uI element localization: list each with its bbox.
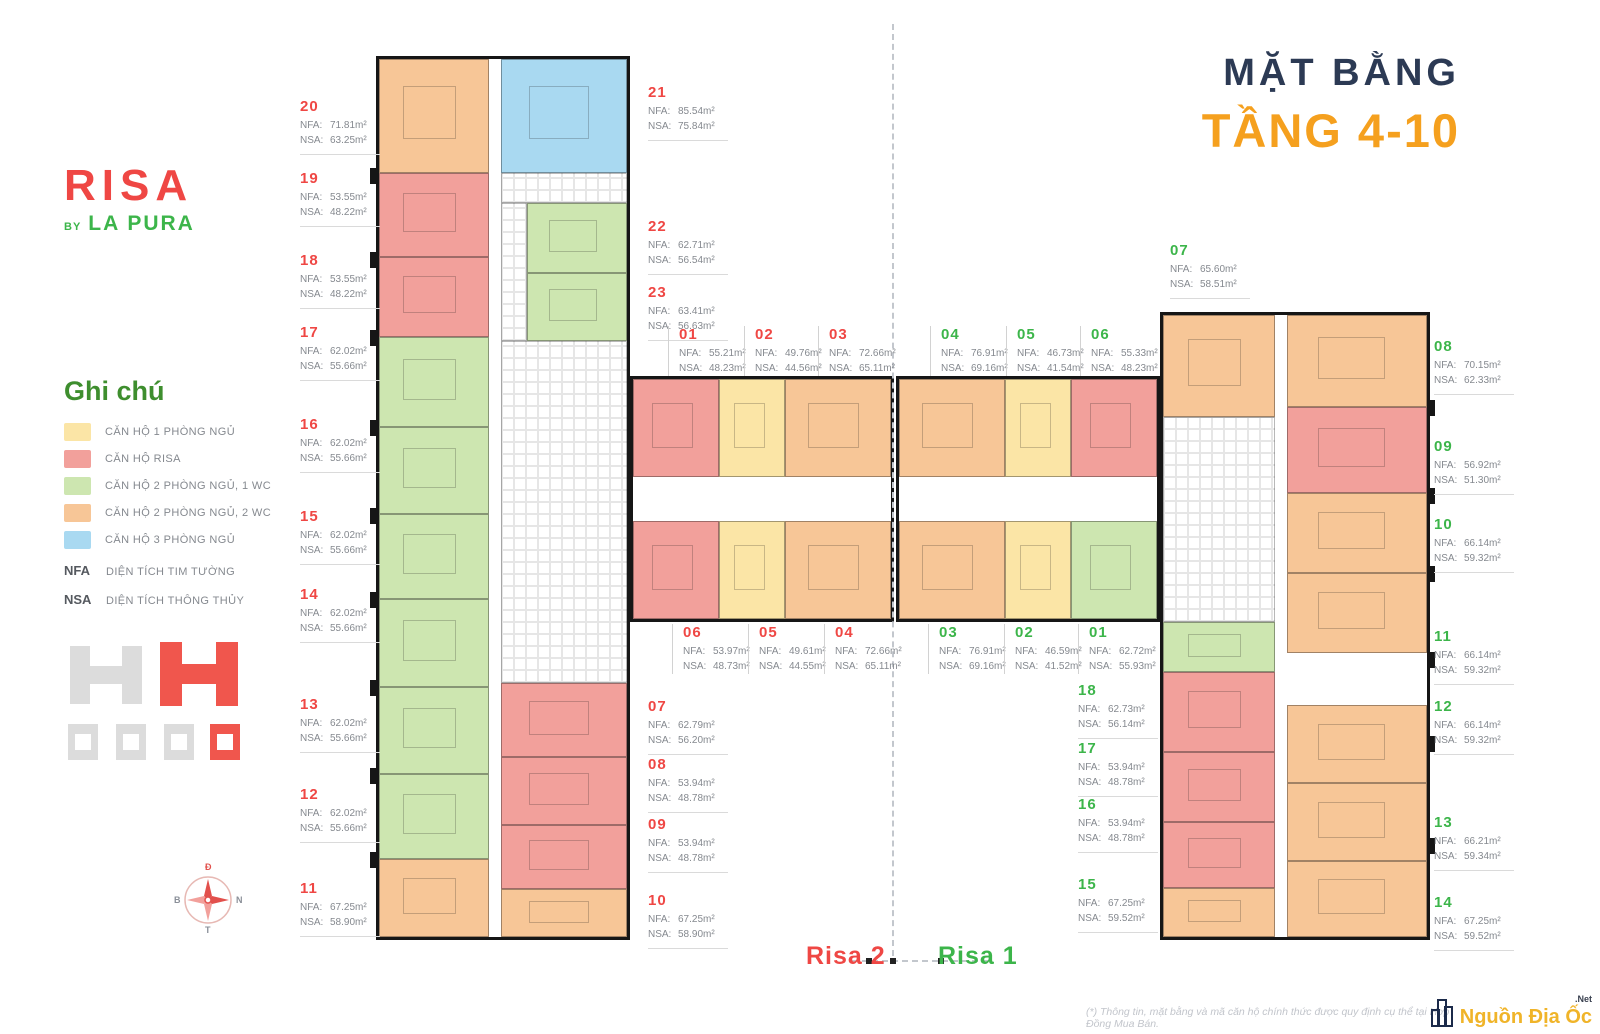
floorplan-canvas: MẶT BẰNG TẦNG 4-10 RISA BY LA PURA Ghi c… (0, 0, 1600, 1034)
unit-block (719, 379, 785, 477)
watermark-suffix: .Net (1460, 994, 1592, 1004)
unit-block (1163, 888, 1275, 937)
unit-block (527, 273, 627, 341)
unit-block (1287, 861, 1427, 937)
unit-label: 04NFA:72.66m²NSA:65.11m² (824, 624, 915, 674)
unit-block (501, 683, 627, 757)
unit-label: 13NFA:62.02m²NSA:55.66m² (300, 696, 380, 753)
unit-block (1163, 822, 1275, 888)
unit-label: 07NFA:65.60m²NSA:58.51m² (1170, 242, 1250, 299)
unit-label: 07NFA:62.79m²NSA:56.20m² (648, 698, 728, 755)
unit-block (1005, 521, 1071, 619)
unit-label: 18NFA:53.55m²NSA:48.22m² (300, 252, 380, 309)
unit-block (379, 173, 489, 257)
page-title-line1: MẶT BẰNG (1202, 52, 1460, 95)
unit-label: 21NFA:85.54m²NSA:75.84m² (648, 84, 728, 141)
site-block-icon (164, 724, 194, 760)
unit-label: 01NFA:62.72m²NSA:55.93m² (1078, 624, 1169, 674)
compass-bottom-label: T (205, 925, 211, 935)
stair-core (501, 173, 627, 203)
unit-label: 10NFA:67.25m²NSA:58.90m² (648, 892, 728, 949)
unit-block (1163, 622, 1275, 672)
unit-label: 11NFA:66.14m²NSA:59.32m² (1434, 628, 1514, 685)
unit-label: 09NFA:56.92m²NSA:51.30m² (1434, 438, 1514, 495)
legend-item: CĂN HỘ 3 PHÒNG NGỦ (64, 531, 294, 549)
unit-block (1005, 379, 1071, 477)
risa1-building (1160, 312, 1430, 940)
unit-block (379, 599, 489, 687)
unit-label: 15NFA:62.02m²NSA:55.66m² (300, 508, 380, 565)
unit-label: 03NFA:72.66m²NSA:65.11m² (818, 326, 909, 376)
unit-block (501, 889, 627, 937)
risa-logo: RISA BY LA PURA (64, 164, 195, 236)
unit-block (719, 521, 785, 619)
unit-label: 09NFA:53.94m²NSA:48.78m² (648, 816, 728, 873)
compass-rose-icon: Đ N T B (172, 862, 244, 934)
unit-label: 16NFA:62.02m²NSA:55.66m² (300, 416, 380, 473)
legend-swatch-1br (64, 423, 91, 441)
risa1-name: Risa 1 (938, 942, 1018, 971)
page-title-line2: TẦNG 4-10 (1202, 103, 1460, 158)
unit-block (1287, 705, 1427, 783)
risa2-name: Risa 2 (806, 942, 886, 971)
compass-left-label: B (174, 895, 181, 905)
tower-divider-line (892, 24, 894, 956)
unit-block (379, 59, 489, 173)
unit-block (633, 521, 719, 619)
legend-swatch-2br1wc (64, 477, 91, 495)
unit-label: 15NFA:67.25m²NSA:59.52m² (1078, 876, 1158, 933)
unit-label: 14NFA:62.02m²NSA:55.66m² (300, 586, 380, 643)
unit-block (1287, 315, 1427, 407)
unit-block (1287, 573, 1427, 653)
unit-block (1163, 315, 1275, 417)
stair-core (501, 203, 527, 341)
page-title: MẶT BẰNG TẦNG 4-10 (1202, 52, 1460, 158)
legend-item: CĂN HỘ 2 PHÒNG NGỦ, 1 WC (64, 477, 294, 495)
unit-label: 17NFA:53.94m²NSA:48.78m² (1078, 740, 1158, 797)
unit-label: 17NFA:62.02m²NSA:55.66m² (300, 324, 380, 381)
unit-label: 22NFA:62.71m²NSA:56.54m² (648, 218, 728, 275)
unit-label: 12NFA:66.14m²NSA:59.32m² (1434, 698, 1514, 755)
disclaimer-text: (*) Thông tin, mặt bằng và mã căn hộ chí… (1086, 1006, 1456, 1030)
unit-block (379, 774, 489, 859)
unit-label: 08NFA:53.94m²NSA:48.78m² (648, 756, 728, 813)
unit-block (1163, 672, 1275, 752)
unit-block (379, 687, 489, 774)
unit-block (379, 427, 489, 514)
unit-label: 14NFA:67.25m²NSA:59.52m² (1434, 894, 1514, 951)
site-tower-red-icon (160, 642, 182, 706)
site-block-icon (68, 724, 98, 760)
unit-label: 13NFA:66.21m²NSA:59.34m² (1434, 814, 1514, 871)
site-block-icon (116, 724, 146, 760)
unit-label: 12NFA:62.02m²NSA:55.66m² (300, 786, 380, 843)
unit-block (527, 203, 627, 273)
watermark-name: Nguồn Địa Ốc (1460, 1006, 1592, 1028)
legend-item: CĂN HỘ RISA (64, 450, 294, 468)
unit-block (1163, 752, 1275, 822)
unit-block (501, 59, 627, 173)
unit-block (379, 257, 489, 337)
unit-block (1287, 407, 1427, 493)
legend-item: CĂN HỘ 1 PHÒNG NGỦ (64, 423, 294, 441)
legend-item: CĂN HỘ 2 PHÒNG NGỦ, 2 WC (64, 504, 294, 522)
legend-abbr-nfa: NFADIỆN TÍCH TIM TƯỜNG (64, 563, 294, 578)
unit-label: 08NFA:70.15m²NSA:62.33m² (1434, 338, 1514, 395)
logo-name: RISA (64, 164, 195, 208)
wall-tick (370, 680, 377, 696)
compass-top-label: Đ (205, 862, 212, 872)
unit-block (379, 337, 489, 427)
site-plan-icons (64, 640, 244, 770)
unit-block (785, 521, 891, 619)
wall-tick (370, 768, 377, 784)
unit-label: 06NFA:55.33m²NSA:48.23m² (1080, 326, 1171, 376)
unit-block (1071, 521, 1157, 619)
legend-abbr-nsa: NSADIỆN TÍCH THÔNG THỦY (64, 592, 294, 607)
site-tower-gray-icon (70, 646, 90, 704)
unit-block (899, 379, 1005, 477)
legend-title: Ghi chú (64, 376, 294, 407)
legend: Ghi chú CĂN HỘ 1 PHÒNG NGỦ CĂN HỘ RISA C… (64, 376, 294, 607)
legend-swatch-2br2wc (64, 504, 91, 522)
logo-by: BY (64, 221, 81, 233)
risa2-building (376, 56, 630, 940)
elevator-core (501, 341, 627, 683)
divider-dot (890, 958, 896, 964)
unit-label: 18NFA:62.73m²NSA:56.14m² (1078, 682, 1158, 739)
legend-swatch-risa (64, 450, 91, 468)
unit-block (633, 379, 719, 477)
unit-block (379, 514, 489, 599)
wall-tick (1428, 400, 1435, 416)
building-icon (1429, 998, 1455, 1028)
unit-label: 11NFA:67.25m²NSA:58.90m² (300, 880, 380, 937)
unit-label: 16NFA:53.94m²NSA:48.78m² (1078, 796, 1158, 853)
unit-block (1287, 493, 1427, 573)
wall-tick (370, 852, 377, 868)
unit-block (785, 379, 891, 477)
unit-block (379, 859, 489, 937)
unit-label: 20NFA:71.81m²NSA:63.25m² (300, 98, 380, 155)
site-block-red-icon (210, 724, 240, 760)
elevator-core (1163, 417, 1275, 622)
logo-brand: LA PURA (88, 212, 195, 236)
compass-right-label: N (236, 895, 243, 905)
watermark: .Net Nguồn Địa Ốc (1429, 994, 1592, 1028)
unit-label: 10NFA:66.14m²NSA:59.32m² (1434, 516, 1514, 573)
unit-label: 19NFA:53.55m²NSA:48.22m² (300, 170, 380, 227)
slab-gap (1287, 653, 1427, 705)
unit-block (501, 825, 627, 889)
legend-swatch-3br (64, 531, 91, 549)
risa2-wing (630, 376, 894, 622)
unit-block (501, 757, 627, 825)
unit-block (899, 521, 1005, 619)
risa1-wing (896, 376, 1160, 622)
unit-block (1071, 379, 1157, 477)
unit-block (1287, 783, 1427, 861)
